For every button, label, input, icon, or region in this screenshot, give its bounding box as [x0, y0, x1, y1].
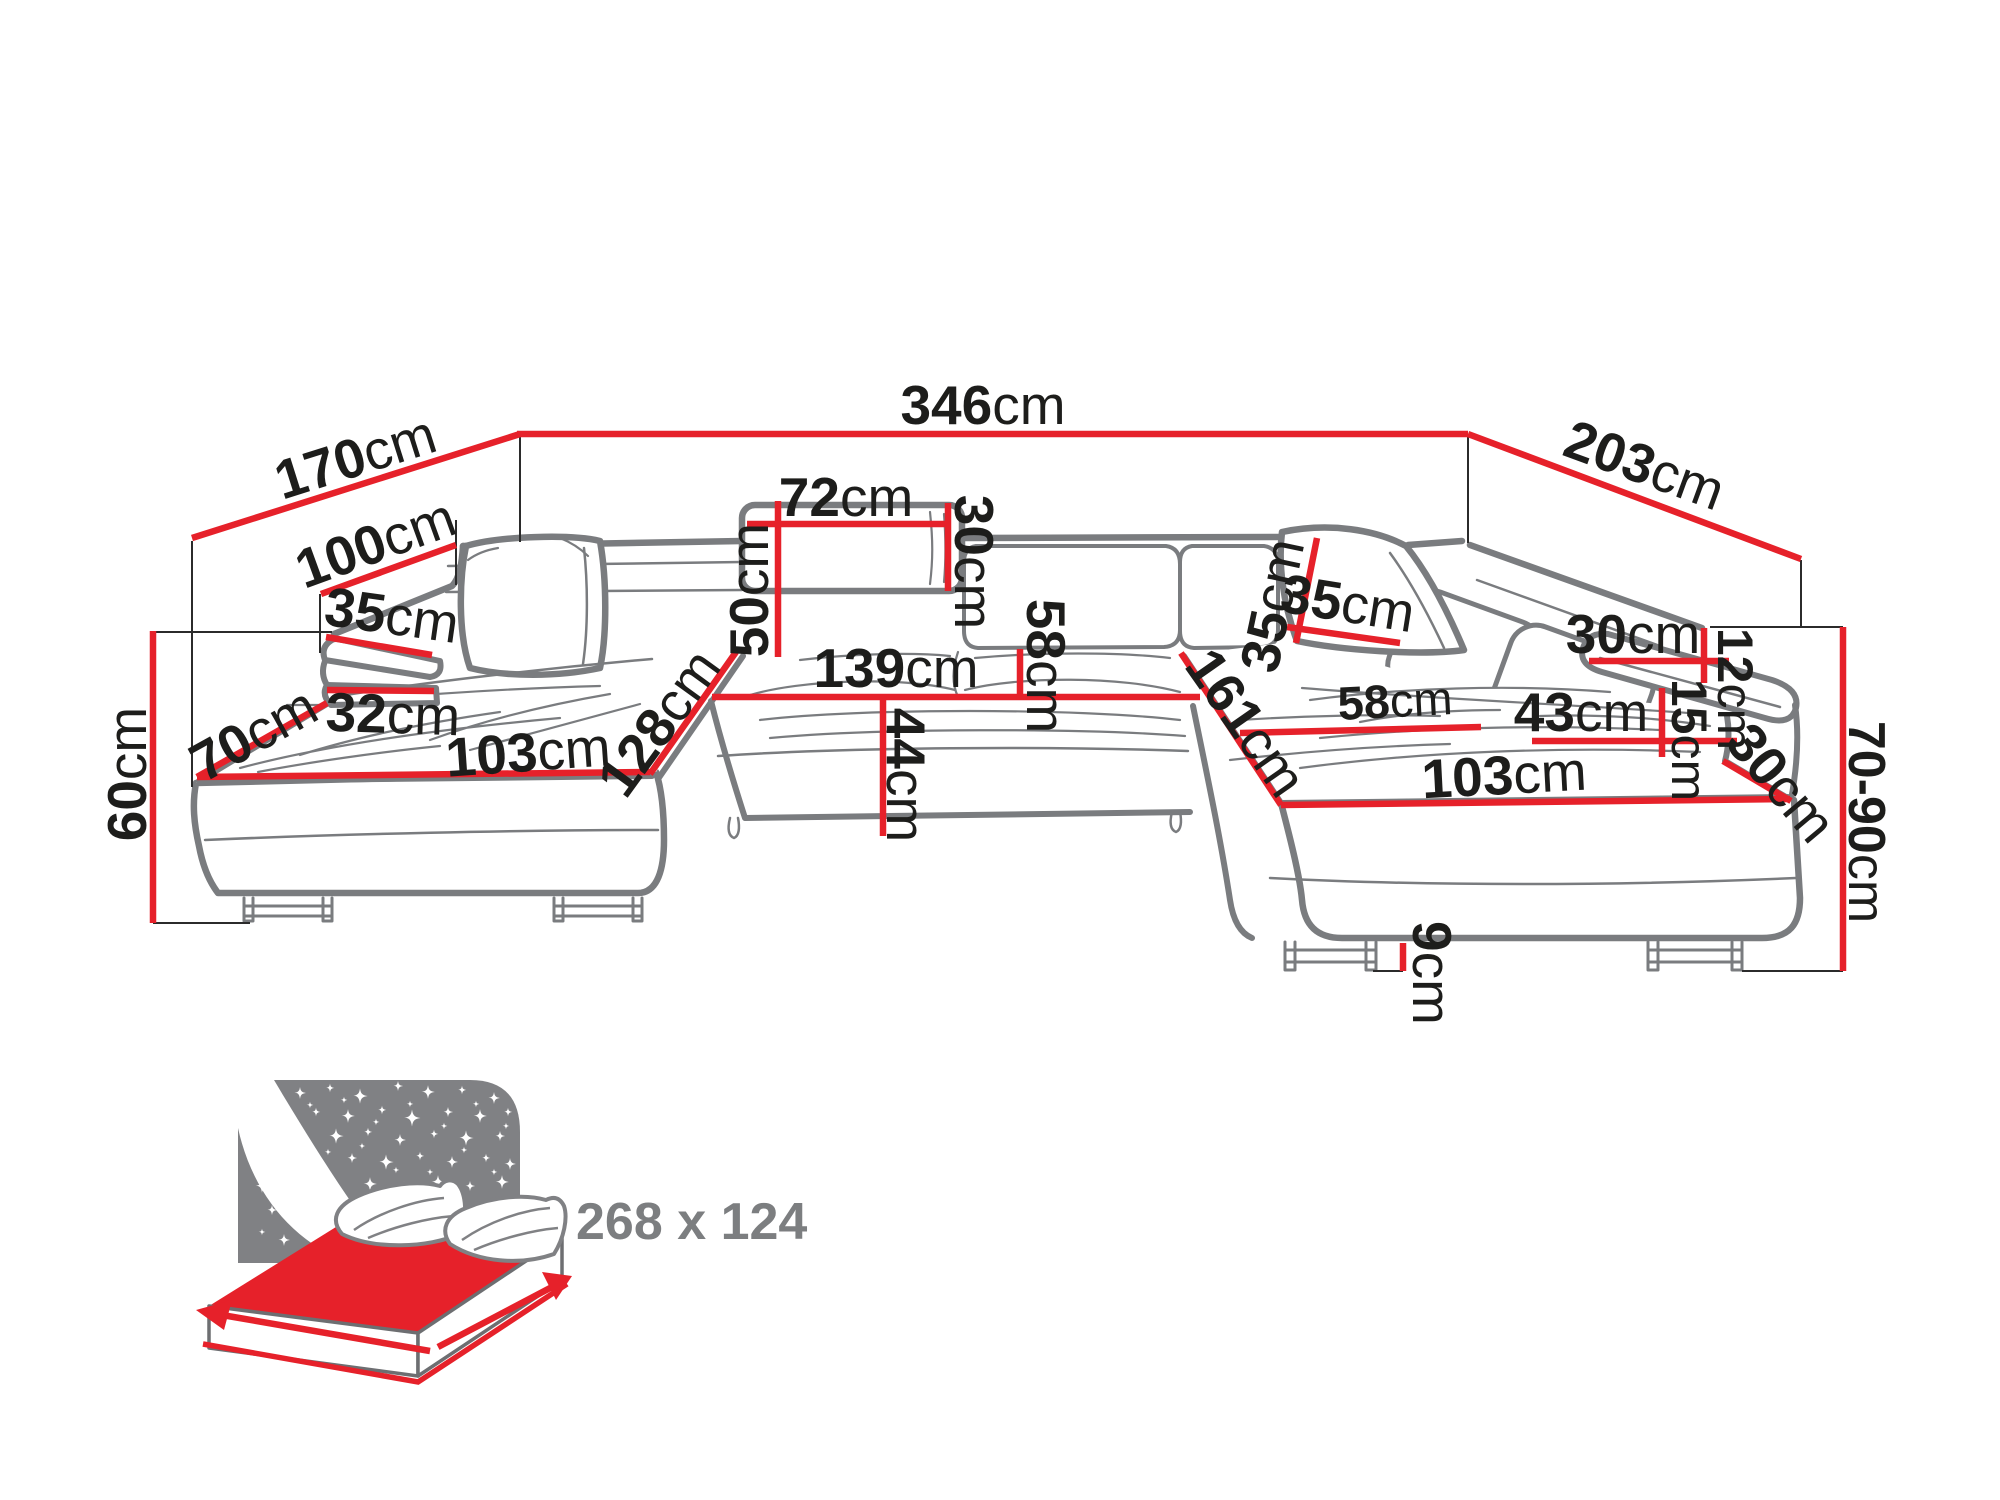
- svg-text:268 x 124: 268 x 124: [576, 1193, 807, 1251]
- svg-text:72cm: 72cm: [779, 466, 914, 528]
- svg-text:43cm: 43cm: [1514, 681, 1649, 743]
- svg-text:32cm: 32cm: [325, 681, 462, 748]
- svg-text:103cm: 103cm: [444, 715, 613, 788]
- svg-text:50cm: 50cm: [718, 523, 780, 658]
- svg-text:9cm: 9cm: [1401, 921, 1463, 1025]
- svg-text:139cm: 139cm: [813, 637, 978, 699]
- svg-text:60cm: 60cm: [96, 707, 158, 842]
- svg-text:103cm: 103cm: [1420, 740, 1588, 811]
- svg-text:30cm: 30cm: [943, 495, 1005, 630]
- svg-text:70-90cm: 70-90cm: [1837, 721, 1895, 923]
- svg-text:58cm: 58cm: [1336, 671, 1454, 730]
- svg-text:58cm: 58cm: [1015, 599, 1077, 734]
- svg-text:44cm: 44cm: [875, 708, 937, 843]
- svg-text:346cm: 346cm: [900, 374, 1065, 436]
- svg-text:30cm: 30cm: [1566, 603, 1701, 665]
